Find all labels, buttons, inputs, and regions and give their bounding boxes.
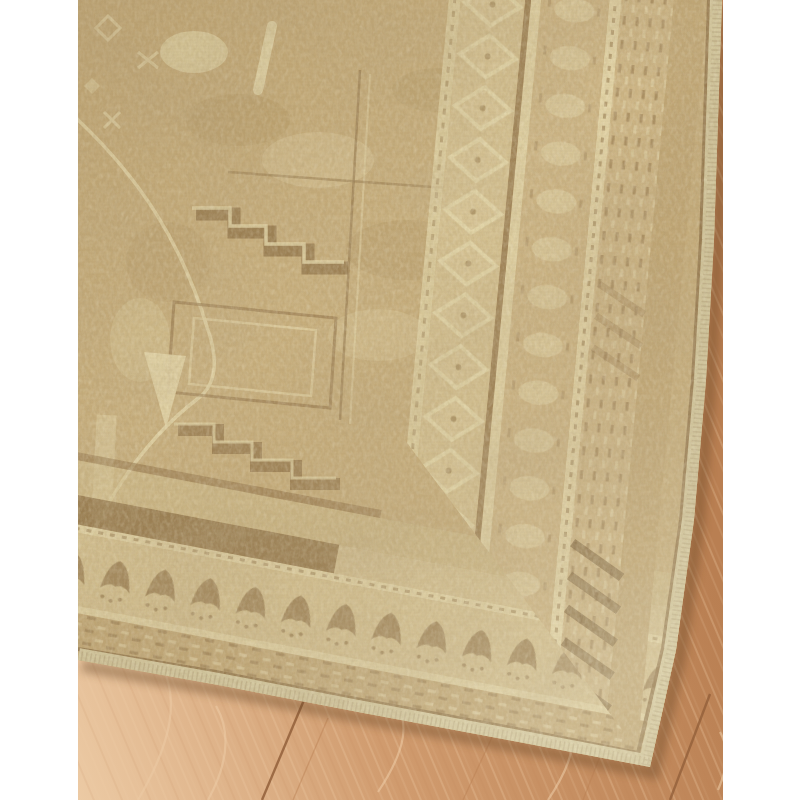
photo-canvas bbox=[78, 0, 723, 800]
product-photo bbox=[78, 0, 723, 800]
